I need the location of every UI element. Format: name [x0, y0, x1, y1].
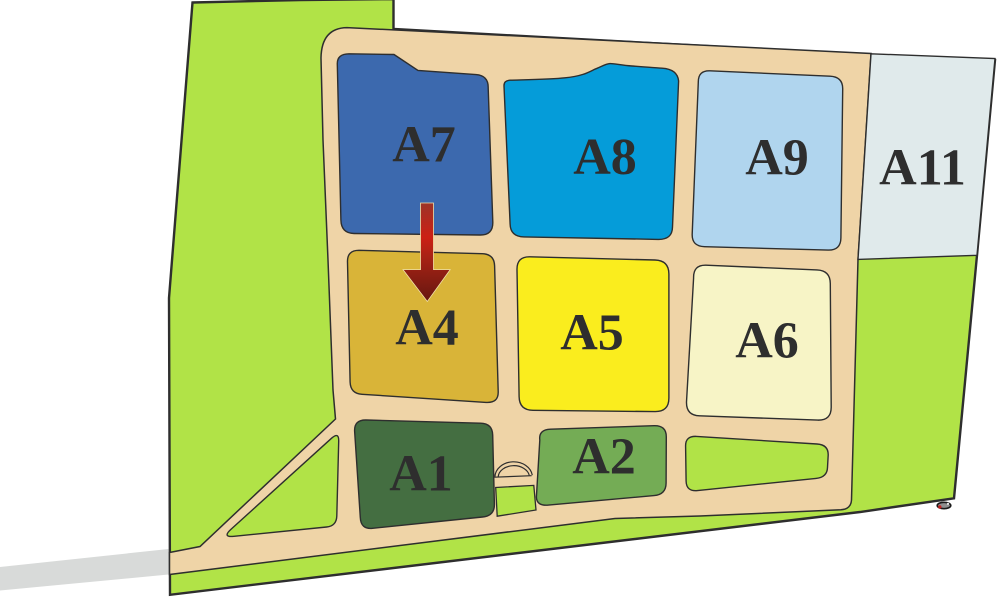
svg-text:A5: A5 — [560, 305, 624, 362]
svg-text:A4: A4 — [395, 300, 459, 357]
svg-text:A1: A1 — [389, 446, 453, 503]
svg-text:A6: A6 — [735, 313, 799, 370]
svg-text:A9: A9 — [745, 130, 809, 187]
svg-text:A11: A11 — [879, 140, 966, 197]
svg-text:A2: A2 — [572, 429, 636, 486]
svg-text:A7: A7 — [392, 117, 456, 174]
svg-text:A8: A8 — [573, 129, 637, 186]
